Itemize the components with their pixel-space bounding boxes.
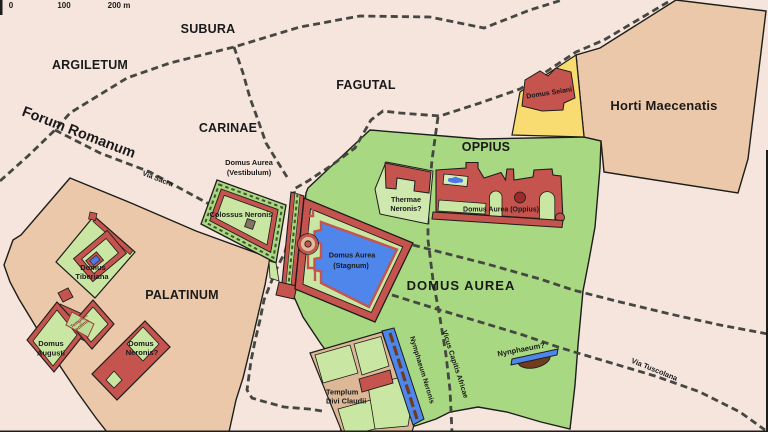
- svg-text:Horti Maecenatis: Horti Maecenatis: [610, 98, 717, 113]
- svg-text:CARINAE: CARINAE: [199, 121, 257, 135]
- svg-text:OPPIUS: OPPIUS: [462, 140, 510, 154]
- svg-text:Templum: Templum: [326, 388, 359, 397]
- svg-text:Augusti: Augusti: [37, 349, 65, 358]
- svg-text:PALATINUM: PALATINUM: [145, 288, 219, 302]
- svg-text:Thermae: Thermae: [391, 195, 421, 204]
- svg-text:Neronis?: Neronis?: [390, 204, 421, 213]
- svg-text:Tiberiana: Tiberiana: [75, 272, 109, 281]
- svg-text:0: 0: [9, 1, 14, 10]
- svg-text:FAGUTAL: FAGUTAL: [336, 78, 396, 92]
- svg-text:Domus: Domus: [38, 339, 63, 348]
- svg-text:Domus Aurea: Domus Aurea: [225, 158, 274, 167]
- svg-text:Domus Aurea: Domus Aurea: [329, 251, 376, 260]
- svg-text:DOMUS AUREA: DOMUS AUREA: [407, 278, 516, 293]
- svg-text:Neronis?: Neronis?: [126, 348, 159, 357]
- svg-text:Divi Claudii: Divi Claudii: [326, 397, 366, 406]
- svg-text:Domus Aurea (Oppius): Domus Aurea (Oppius): [463, 207, 539, 214]
- svg-text:(Stagnum): (Stagnum): [333, 261, 369, 270]
- svg-text:(Vestibulum): (Vestibulum): [227, 168, 272, 177]
- svg-text:SUBURA: SUBURA: [181, 22, 236, 36]
- svg-text:100: 100: [57, 1, 71, 10]
- svg-text:Domus: Domus: [80, 263, 105, 272]
- svg-text:ARGILETUM: ARGILETUM: [52, 58, 128, 72]
- svg-text:200 m: 200 m: [108, 1, 131, 10]
- svg-text:Domus: Domus: [128, 339, 153, 348]
- svg-text:Colossus Neronis: Colossus Neronis: [210, 210, 273, 219]
